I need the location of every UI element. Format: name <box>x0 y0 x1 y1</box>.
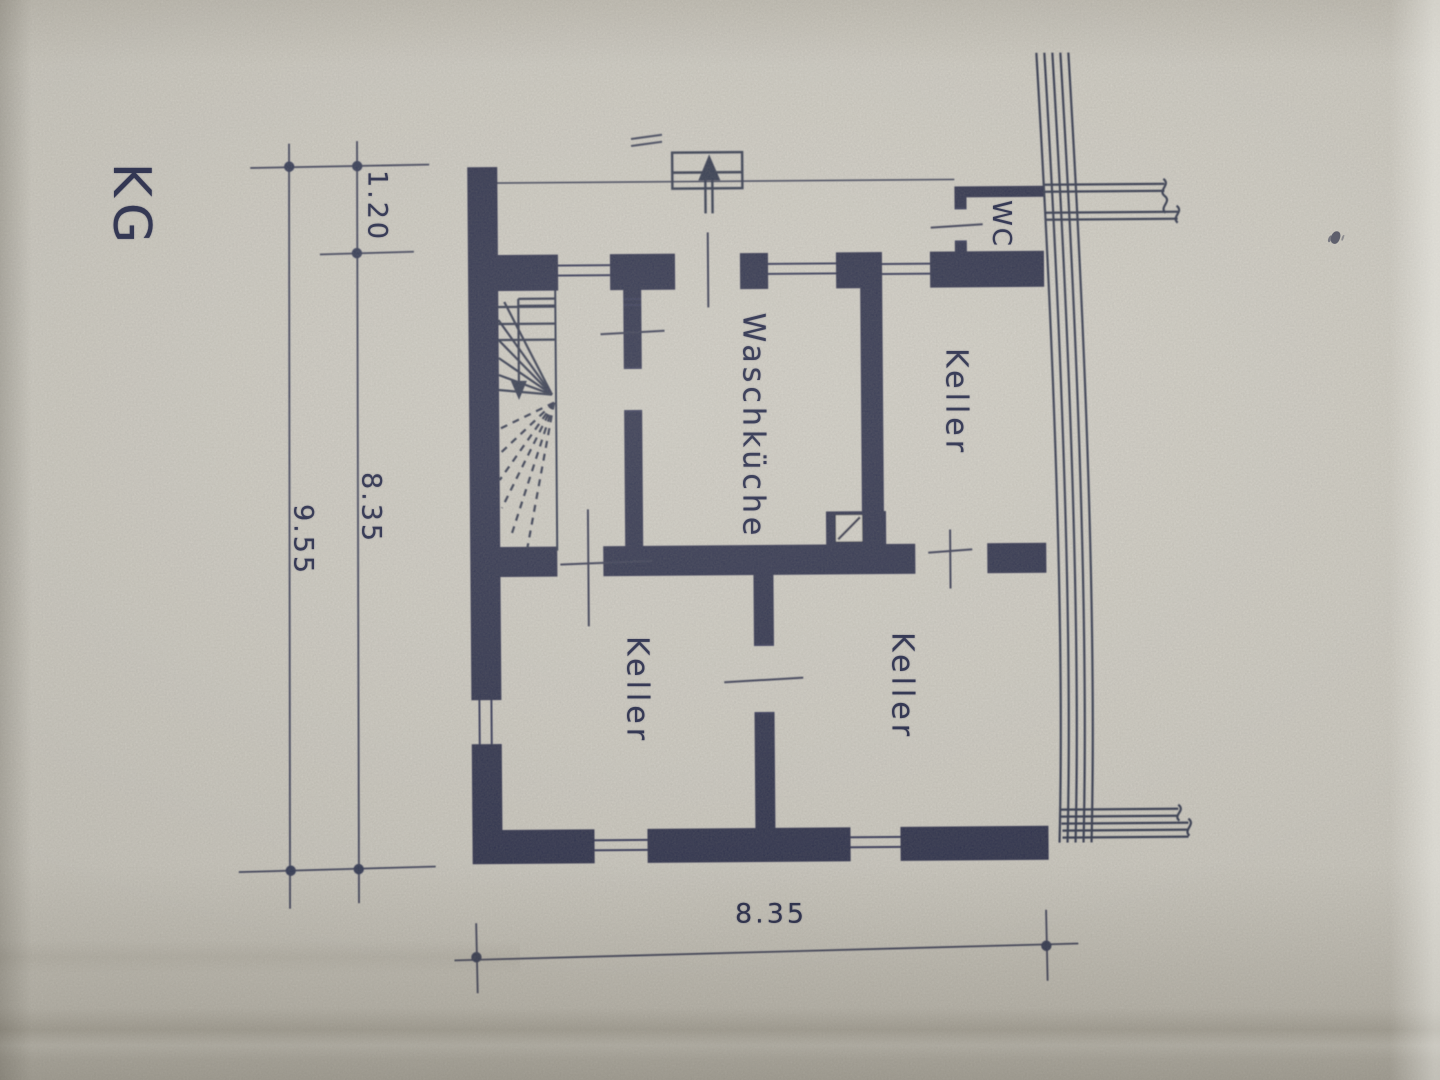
dim-left-inner: 8.35 <box>356 472 387 544</box>
dim-upper-left: 1.20 <box>362 170 393 242</box>
room-label-wc: WC <box>986 200 1016 248</box>
dim-left-overall: 9.55 <box>288 504 319 576</box>
dim-bottom: 8.35 <box>735 899 807 930</box>
scanned-floorplan-photo: KG WC Keller Waschküche Keller Keller 1.… <box>0 0 1440 1080</box>
room-label-waschkueche: Waschküche <box>736 313 771 540</box>
floorplan-svg <box>0 0 1440 1080</box>
room-label-keller-bottom-right: Keller <box>885 632 920 740</box>
floor-title: KG <box>101 163 161 249</box>
room-label-keller-upper: Keller <box>939 348 974 456</box>
room-label-keller-bottom-left: Keller <box>620 636 655 744</box>
paper-grain <box>0 0 1440 1080</box>
